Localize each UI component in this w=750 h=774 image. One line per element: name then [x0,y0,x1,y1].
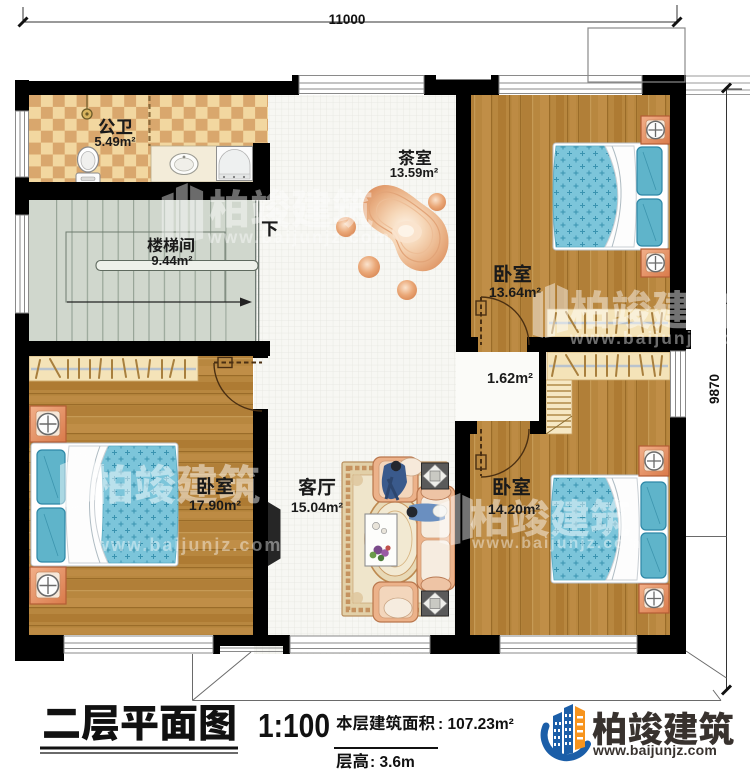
svg-text:www.baijunjz.com: www.baijunjz.com [471,535,642,552]
svg-text:1:100: 1:100 [258,707,330,744]
svg-text:1.62m²: 1.62m² [487,371,533,387]
svg-text:5.49m²: 5.49m² [94,134,136,149]
svg-text:14.20m²: 14.20m² [488,501,540,517]
svg-text:: 107.23m²: : 107.23m² [438,716,514,733]
svg-text:9.44m²: 9.44m² [151,253,193,268]
svg-text:11000: 11000 [329,12,366,27]
svg-text:www.baijunjz.com: www.baijunjz.com [592,742,717,758]
svg-text:13.59m²: 13.59m² [390,165,439,180]
svg-text:15.04m²: 15.04m² [291,499,343,515]
svg-text:: 3.6m: : 3.6m [370,754,415,771]
svg-text:www.baijunjz.com: www.baijunjz.com [94,535,282,555]
svg-text:13.64m²: 13.64m² [489,284,541,300]
svg-text:www.baijunjz.com: www.baijunjz.com [207,227,391,247]
svg-text:17.90m²: 17.90m² [189,497,241,513]
svg-text:www.baijunjz.com: www.baijunjz.com [569,328,750,348]
svg-text:9870: 9870 [707,374,722,404]
